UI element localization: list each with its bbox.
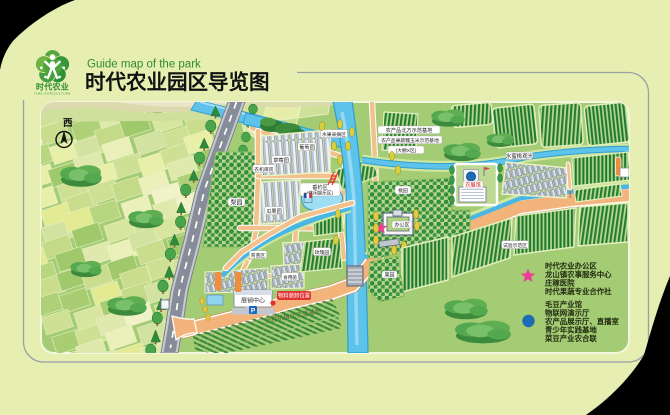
svg-text:农机库房: 农机库房 — [254, 166, 273, 173]
svg-text:物料装卸位置: 物料装卸位置 — [278, 292, 311, 300]
svg-text:玫瑰园: 玫瑰园 — [315, 249, 330, 256]
svg-text:菜豆产业农合联: 菜豆产业农合联 — [544, 334, 597, 343]
svg-text:桃园: 桃园 — [398, 187, 408, 194]
svg-text:农产品北方示范基地: 农产品北方示范基地 — [386, 126, 433, 134]
svg-text:农产品果蔬糯玉米示范基地: 农产品果蔬糯玉米示范基地 — [381, 137, 439, 144]
svg-text:农展馆: 农展馆 — [465, 181, 481, 189]
svg-text:P: P — [251, 308, 256, 315]
svg-text:办公区: 办公区 — [394, 222, 409, 229]
svg-text:时代农业: 时代农业 — [36, 82, 69, 92]
svg-text:西: 西 — [63, 118, 73, 129]
svg-text:(大棚X区): (大棚X区) — [396, 147, 417, 154]
svg-text:展销中心: 展销中心 — [241, 297, 265, 305]
svg-text:食用菌: 食用菌 — [283, 274, 297, 281]
svg-text:时代果蔬专业合作社: 时代果蔬专业合作社 — [545, 287, 612, 296]
svg-text:果园: 果园 — [384, 273, 394, 279]
svg-text:育苗区: 育苗区 — [251, 252, 266, 259]
svg-text:试验示范区: 试验示范区 — [503, 242, 527, 249]
svg-text:梨园: 梨园 — [230, 199, 242, 207]
svg-text:TIME AGRICULTURE: TIME AGRICULTURE — [34, 92, 71, 96]
svg-text:瓜果园: 瓜果园 — [266, 208, 282, 215]
svg-text:水果采摘区: 水果采摘区 — [322, 131, 346, 138]
svg-text:时代农业园区导览图: 时代农业园区导览图 — [85, 70, 270, 94]
svg-text:水蜜桃观光: 水蜜桃观光 — [506, 152, 534, 160]
svg-text:Guide map of the park: Guide map of the park — [87, 59, 201, 71]
svg-text:草莓园: 草莓园 — [273, 156, 289, 164]
svg-text:葡萄园: 葡萄园 — [299, 143, 315, 151]
